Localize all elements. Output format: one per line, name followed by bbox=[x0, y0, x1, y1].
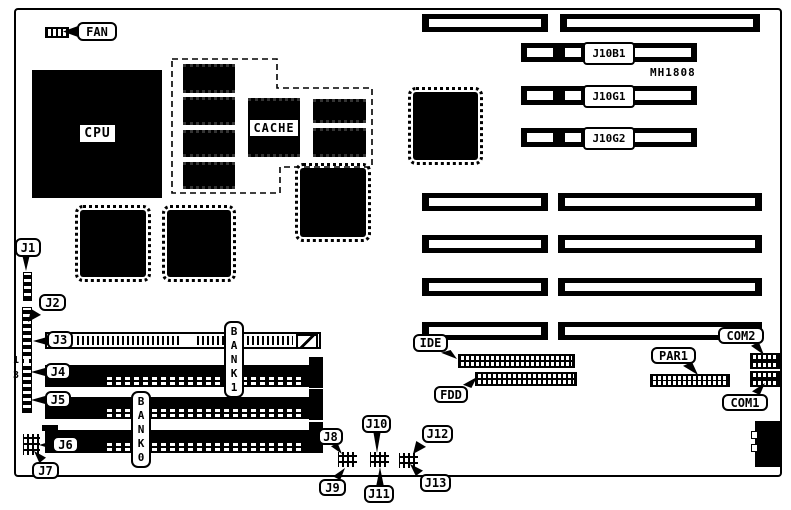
callout-j3: J3 bbox=[47, 331, 73, 349]
ide-header bbox=[458, 354, 575, 368]
qfp-chip bbox=[300, 168, 366, 237]
socket-gap bbox=[182, 336, 194, 345]
keyboard-connector-notch bbox=[751, 431, 758, 439]
fan-callout: FAN bbox=[77, 22, 117, 41]
isa-slot bbox=[558, 235, 762, 253]
slot-stripe bbox=[635, 133, 691, 142]
slot-stripe bbox=[565, 133, 581, 142]
simm-socket-j3 bbox=[45, 332, 321, 349]
pin1-gap bbox=[24, 359, 29, 366]
callout-j8: J8 bbox=[318, 428, 343, 445]
callout-j11: J11 bbox=[364, 485, 394, 503]
isa-slot bbox=[422, 193, 548, 211]
par1-header bbox=[650, 374, 730, 387]
pin-marker-1: 1 bbox=[13, 356, 19, 366]
simm-slot-j4 bbox=[45, 365, 315, 387]
cache-label: CACHE bbox=[250, 120, 298, 136]
slot-stripe bbox=[635, 91, 691, 100]
bank0-label: BANK0 bbox=[131, 391, 151, 468]
jumper-j8-j9-block bbox=[338, 452, 357, 467]
qfp-chip bbox=[167, 210, 231, 277]
callout-j10: J10 bbox=[362, 415, 391, 433]
isa-slot bbox=[422, 278, 548, 296]
socket-latch bbox=[296, 334, 318, 349]
callout-j6: J6 bbox=[52, 436, 79, 453]
slot-label-j10b1: J10B1 bbox=[583, 42, 635, 65]
isa-slot bbox=[558, 193, 762, 211]
callout-j5: J5 bbox=[45, 391, 71, 408]
isa-slot bbox=[560, 14, 760, 32]
qfp-chip bbox=[413, 92, 478, 160]
slot-label-j10g2: J10G2 bbox=[583, 127, 635, 150]
keyboard-connector bbox=[755, 421, 782, 467]
simm-clip bbox=[309, 389, 323, 420]
callout-com1: COM1 bbox=[722, 394, 768, 411]
slot-stripe bbox=[527, 91, 553, 100]
callout-j1: J1 bbox=[15, 238, 41, 257]
callout-com2: COM2 bbox=[718, 327, 764, 344]
slot-stripe bbox=[527, 133, 553, 142]
isa-slot bbox=[422, 14, 548, 32]
callout-j2: J2 bbox=[39, 294, 66, 311]
callout-j9: J9 bbox=[319, 479, 346, 496]
callout-j7: J7 bbox=[32, 462, 59, 479]
cpu-label: CPU bbox=[80, 125, 115, 142]
jumper-j6-j7-block bbox=[23, 434, 40, 455]
com2-header bbox=[750, 353, 780, 369]
motherboard-diagram: FAN CPU CACHE J10B1 MH1808 J10G1 J10G2 bbox=[0, 0, 791, 510]
vlb-slot-j10b1: J10B1 bbox=[521, 43, 697, 62]
slot-stripe bbox=[527, 48, 553, 57]
jumper-j10-j11-block bbox=[370, 452, 389, 467]
callout-par1: PAR1 bbox=[651, 347, 696, 364]
vlb-slot-j10g2: J10G2 bbox=[521, 128, 697, 147]
callout-j12: J12 bbox=[422, 425, 453, 443]
qfp-chip bbox=[80, 210, 146, 277]
pin-marker-3: 3 bbox=[13, 371, 19, 381]
slot-stripe bbox=[565, 91, 581, 100]
sram-dip-chip bbox=[313, 128, 366, 157]
isa-slot bbox=[558, 278, 762, 296]
callout-j4: J4 bbox=[45, 363, 71, 380]
vlb-slot-j10g1: J10G1 bbox=[521, 86, 697, 105]
fdd-header bbox=[475, 372, 577, 386]
callout-fdd: FDD bbox=[434, 386, 468, 403]
keyboard-connector-notch bbox=[751, 444, 758, 452]
board-id-text: MH1808 bbox=[650, 66, 696, 79]
callout-ide: IDE bbox=[413, 334, 448, 352]
simm-slot-j5 bbox=[45, 397, 315, 419]
sram-dip-chip bbox=[313, 99, 366, 123]
slot-stripe bbox=[635, 48, 691, 57]
sram-dip-chip bbox=[183, 130, 235, 157]
sram-dip-chip bbox=[183, 97, 235, 125]
jumper-j1-header bbox=[23, 272, 32, 301]
com1-header bbox=[750, 371, 780, 387]
callout-j13: J13 bbox=[420, 474, 451, 492]
sram-dip-chip bbox=[183, 162, 235, 189]
fan-connector bbox=[45, 27, 69, 38]
jumper-j12-j13-block bbox=[399, 453, 418, 468]
slot-label-j10g1: J10G1 bbox=[583, 85, 635, 108]
bank1-label: BANK1 bbox=[224, 321, 244, 398]
isa-slot bbox=[422, 235, 548, 253]
slot-stripe bbox=[565, 48, 581, 57]
simm-clip bbox=[309, 357, 323, 388]
sram-dip-chip bbox=[183, 64, 235, 93]
simm-slot-j6 bbox=[45, 430, 315, 453]
